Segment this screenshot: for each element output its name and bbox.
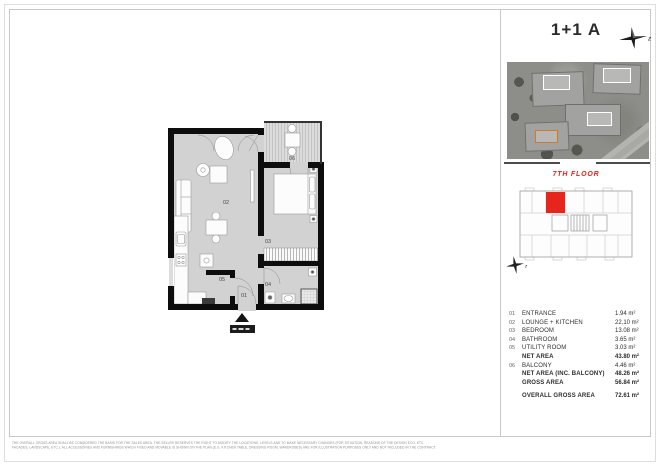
chair (212, 212, 220, 220)
plan-sheet: 02 06 03 04 05 01 1+1 A z (0, 0, 660, 466)
pillow (310, 177, 316, 192)
dining-table (206, 220, 227, 235)
room-label-bathroom: 04 (265, 282, 271, 288)
room-label-utility: 05 (219, 277, 225, 283)
balcony-table (285, 133, 300, 147)
legend-value: 22.10 m² (615, 320, 648, 326)
legend-row: 02 LOUNGE + KITCHEN 22.10 m² (509, 320, 648, 329)
legend-num: 05 (509, 345, 522, 351)
legend-row-net-area-inc-balcony: NET AREA (INC. BALCONY) 48.26 m² (509, 371, 648, 380)
divider-segment (504, 162, 560, 164)
legend-label: NET AREA (522, 354, 615, 360)
legend-label: BALCONY (522, 363, 615, 369)
legend-value: 56.84 m² (615, 380, 648, 386)
north-arrow-icon: z (617, 22, 657, 54)
room-label-lounge: 02 (223, 200, 229, 206)
pillow (310, 194, 316, 209)
photo-roof-board (587, 112, 612, 126)
aerial-photo (507, 62, 649, 159)
legend-row-overall-gross-area: OVERALL GROSS AREA 72.61 m² (509, 393, 648, 402)
compass-letter: z (647, 36, 652, 43)
legend-value: 48.26 m² (615, 371, 648, 377)
legend-num: 01 (509, 311, 522, 317)
room-label-bedroom: 03 (265, 239, 271, 245)
keyplan-outline (520, 191, 632, 257)
legend-row: 04 BATHROOM 3.65 m² (509, 337, 648, 346)
keyplan-highlighted-unit (546, 192, 565, 213)
legend-label: NET AREA (INC. BALCONY) (522, 371, 615, 377)
photo-roof-board-highlighted (535, 130, 558, 143)
photo-roof-board (543, 75, 570, 90)
window (168, 258, 174, 286)
legend-num: 03 (509, 328, 522, 334)
balcony-chair (288, 148, 296, 156)
wardrobe (264, 248, 318, 261)
balcony-chair (288, 125, 296, 133)
legend-label: UTILITY ROOM (522, 345, 615, 351)
legend-num: 06 (509, 363, 522, 369)
stove (176, 254, 186, 266)
legend-row: 03 BEDROOM 13.08 m² (509, 328, 648, 337)
legend-value: 72.61 m² (615, 393, 648, 399)
legend-row: 01 ENTRANCE 1.94 m² (509, 311, 648, 320)
legend-value: 43.80 m² (615, 354, 648, 360)
floor-plan-drawing: 02 06 03 04 05 01 (158, 108, 354, 342)
divider-segment (596, 162, 650, 164)
legend-row-net-area: NET AREA 43.80 m² (509, 354, 648, 363)
room-label-balcony: 06 (289, 156, 295, 162)
legend-num: 02 (509, 320, 522, 326)
legend-row: 06 BALCONY 4.46 m² (509, 363, 648, 372)
floor-areas (174, 123, 322, 311)
legend-num: 04 (509, 337, 522, 343)
legend-value: 3.03 m² (615, 345, 648, 351)
floor-label: 7TH FLOOR (500, 171, 652, 178)
legend-label: GROSS AREA (522, 380, 615, 386)
shaft (202, 298, 215, 304)
disclaimer-text: THE OVERALL GROSS AREA SHALL BE CONSIDER… (12, 441, 492, 450)
shower (301, 289, 317, 304)
legend-row-gross-area: GROSS AREA 56.84 m² (509, 380, 648, 389)
chair (212, 235, 220, 243)
photo-roof-board (603, 68, 631, 83)
room-label-entrance: 01 (241, 293, 247, 299)
legend-value: 13.08 m² (615, 328, 648, 334)
legend-label: BEDROOM (522, 328, 615, 334)
keyplan-north-arrow-icon (505, 255, 525, 276)
entrance-arrow-icon (235, 313, 249, 322)
legend-label: BATHROOM (522, 337, 615, 343)
area-legend: 01 ENTRANCE 1.94 m² 02 LOUNGE + KITCHEN … (509, 311, 648, 401)
legend-value: 4.46 m² (615, 363, 648, 369)
legend-value: 1.94 m² (615, 311, 648, 317)
tv-unit (251, 170, 255, 202)
legend-label: OVERALL GROSS AREA (522, 393, 615, 399)
coffee-table (210, 166, 227, 183)
entrance-marker (230, 313, 255, 333)
keyplan-compass-letter: z (524, 264, 528, 269)
disclaimer-line-2: FACADES, LANDSCAPE, ETC.). ALL ACCESSORI… (12, 446, 492, 451)
panel-divider (500, 9, 501, 437)
legend-row: 05 UTILITY ROOM 3.03 m² (509, 345, 648, 354)
legend-label: LOUNGE + KITCHEN (522, 320, 615, 326)
key-plan: z (505, 183, 650, 279)
legend-value: 3.65 m² (615, 337, 648, 343)
legend-label: ENTRANCE (522, 311, 615, 317)
